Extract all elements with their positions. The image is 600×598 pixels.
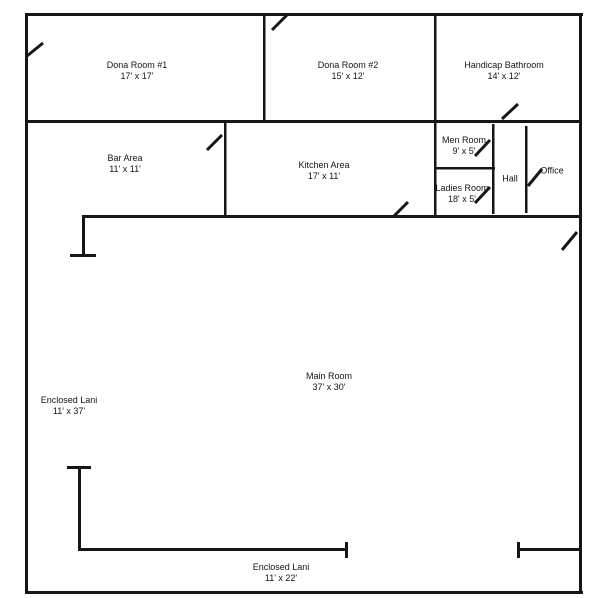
wall-lani-bottom-right [517,548,582,551]
door-swing-dona-room-1-icon [27,43,43,56]
room-name: Main Room [306,371,352,382]
wall-outer-bottom [25,591,583,594]
room-name: Enclosed Lani [41,395,98,406]
wall-outer-right [579,13,582,594]
room-size: 37' x 30' [306,382,352,393]
room-label-dona-room-2: Dona Room #2 15' x 12' [318,60,379,82]
room-name: Handicap Bathroom [464,60,544,71]
wall-men-ladies-divider [434,167,495,170]
room-label-kitchen-area: Kitchen Area 17' x 11' [298,160,349,182]
room-size: 11' x 11' [107,164,142,175]
walls [25,13,583,594]
room-name: Dona Room #2 [318,60,379,71]
room-size: 17' x 17' [107,71,168,82]
room-name: Dona Room #1 [107,60,168,71]
room-label-office: Office [540,166,563,177]
wall-dona2-bathroom-divider [434,15,437,122]
wall-lani-upper-endcap [70,254,96,257]
door-swing-kitchen-icon [393,202,408,217]
room-name: Office [540,166,563,177]
room-label-hall: Hall [502,174,518,185]
wall-lani-bottom-left-endcap [345,542,348,558]
wall-main-room-top [82,215,579,218]
room-name: Kitchen Area [298,160,349,171]
room-label-enclosed-lani-bottom: Enclosed Lani 11' x 22' [253,562,310,584]
wall-outer-top [25,13,583,16]
wall-lani-upper-segment [82,215,85,257]
room-name: Bar Area [107,153,142,164]
room-size: 15' x 12' [318,71,379,82]
door-swing-main-room-icon [562,232,577,250]
room-label-ladies-room: Ladies Room 18' x 5' [435,183,488,205]
wall-hall-left [492,124,495,214]
wall-bar-kitchen-divider [224,122,227,218]
wall-hall-right [525,126,528,213]
door-swing-handicap-bathroom-icon [502,104,518,119]
room-label-men-room: Men Room 9' x 5' [442,135,486,157]
room-name: Men Room [442,135,486,146]
wall-lani-bottom-left [78,548,348,551]
room-label-bar-area: Bar Area 11' x 11' [107,153,142,175]
room-label-handicap-bathroom: Handicap Bathroom 14' x 12' [464,60,544,82]
room-label-dona-room-1: Dona Room #1 17' x 17' [107,60,168,82]
room-name: Ladies Room [435,183,488,194]
door-swing-dona-room-2-icon [272,14,288,30]
room-size: 18' x 5' [435,194,488,205]
wall-outer-left [25,13,28,594]
room-name: Enclosed Lani [253,562,310,573]
door-swing-bar-area-icon [207,135,222,150]
room-size: 11' x 22' [253,573,310,584]
room-label-enclosed-lani-left: Enclosed Lani 11' x 37' [41,395,98,417]
room-name: Hall [502,174,518,185]
wall-upper-horizontal [25,120,582,123]
room-size: 17' x 11' [298,171,349,182]
wall-lani-lower-segment [78,467,81,551]
room-label-main-room: Main Room 37' x 30' [306,371,352,393]
room-size: 9' x 5' [442,146,486,157]
floor-plan-drawing [0,0,600,598]
room-size: 11' x 37' [41,406,98,417]
wall-dona-room-divider [263,15,266,122]
floor-plan: Dona Room #1 17' x 17' Dona Room #2 15' … [0,0,600,598]
room-size: 14' x 12' [464,71,544,82]
wall-lani-lower-endcap [67,466,91,469]
